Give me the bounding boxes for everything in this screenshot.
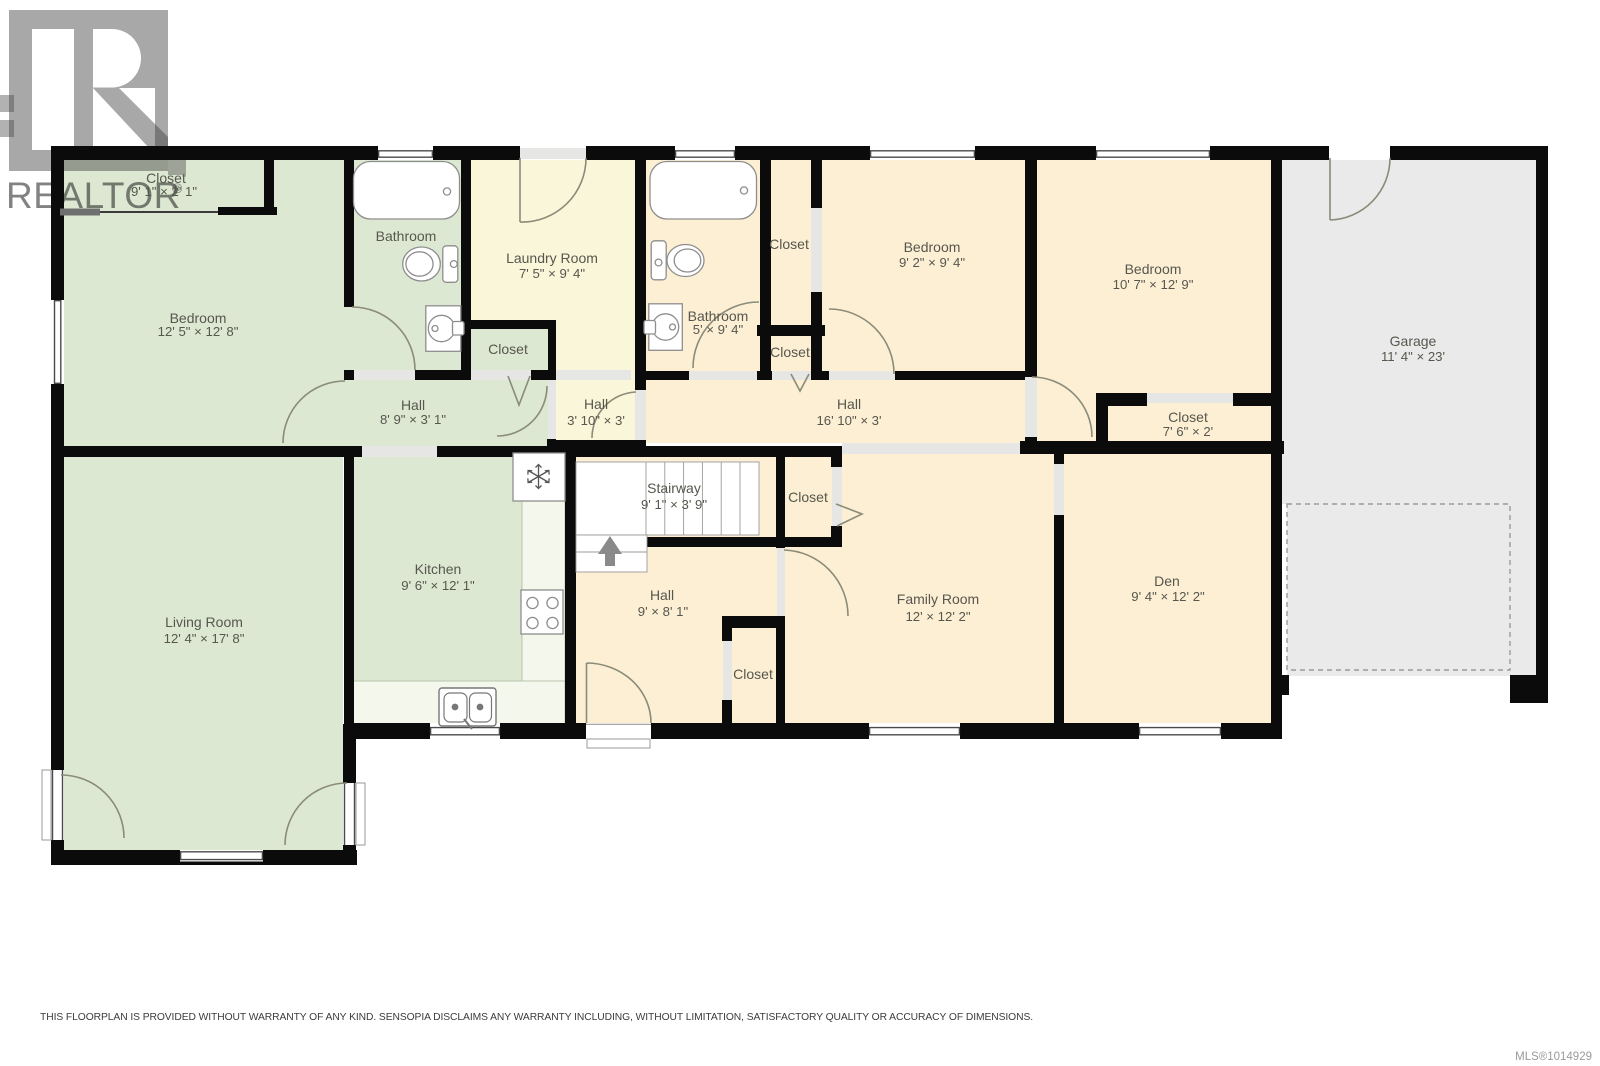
svg-text:3' 10" × 3': 3' 10" × 3' bbox=[567, 413, 625, 428]
svg-text:Closet: Closet bbox=[770, 344, 810, 360]
svg-text:9' 2" × 9' 4": 9' 2" × 9' 4" bbox=[899, 255, 965, 270]
svg-text:11' 4" × 23': 11' 4" × 23' bbox=[1381, 349, 1445, 364]
svg-text:8' 9" × 3' 1": 8' 9" × 3' 1" bbox=[380, 412, 446, 427]
svg-text:Stairway: Stairway bbox=[647, 480, 701, 496]
svg-text:12' 4" × 17' 8": 12' 4" × 17' 8" bbox=[164, 631, 245, 646]
svg-text:Hall: Hall bbox=[837, 396, 861, 412]
svg-text:9' 1" × 3' 9": 9' 1" × 3' 9" bbox=[641, 497, 707, 512]
svg-text:Closet: Closet bbox=[1168, 409, 1208, 425]
svg-text:Garage: Garage bbox=[1390, 333, 1437, 349]
svg-text:10' 7" × 12' 9": 10' 7" × 12' 9" bbox=[1113, 277, 1194, 292]
svg-text:Laundry Room: Laundry Room bbox=[506, 250, 598, 266]
svg-text:12' 5" × 12' 8": 12' 5" × 12' 8" bbox=[158, 324, 239, 339]
svg-text:Bathroom: Bathroom bbox=[376, 228, 437, 244]
svg-text:Family Room: Family Room bbox=[897, 591, 979, 607]
svg-text:MLS®1014929: MLS®1014929 bbox=[1515, 1051, 1592, 1063]
svg-text:Hall: Hall bbox=[650, 587, 674, 603]
svg-text:16' 10" × 3': 16' 10" × 3' bbox=[816, 413, 881, 428]
svg-text:7' 5" × 9' 4": 7' 5" × 9' 4" bbox=[519, 266, 585, 281]
svg-text:Closet: Closet bbox=[769, 236, 809, 252]
svg-text:7' 6" × 2': 7' 6" × 2' bbox=[1163, 424, 1213, 439]
svg-text:Bedroom: Bedroom bbox=[1125, 261, 1182, 277]
svg-text:Den: Den bbox=[1154, 573, 1180, 589]
svg-text:Bedroom: Bedroom bbox=[904, 239, 961, 255]
svg-text:Closet: Closet bbox=[733, 666, 773, 682]
svg-text:Closet: Closet bbox=[788, 489, 828, 505]
svg-text:12' × 12' 2": 12' × 12' 2" bbox=[905, 609, 970, 624]
svg-text:5' × 9' 4": 5' × 9' 4" bbox=[693, 322, 744, 337]
svg-text:Closet: Closet bbox=[488, 341, 528, 357]
svg-text:Living Room: Living Room bbox=[165, 614, 243, 630]
svg-text:9' 4" × 12' 2": 9' 4" × 12' 2" bbox=[1131, 589, 1205, 604]
svg-text:9' 1" × 2' 1": 9' 1" × 2' 1" bbox=[131, 184, 197, 199]
svg-text:THIS FLOORPLAN IS PROVIDED WIT: THIS FLOORPLAN IS PROVIDED WITHOUT WARRA… bbox=[40, 1012, 1033, 1023]
svg-text:Kitchen: Kitchen bbox=[415, 561, 462, 577]
svg-text:9' 6" × 12' 1": 9' 6" × 12' 1" bbox=[401, 578, 475, 593]
svg-text:Hall: Hall bbox=[584, 396, 608, 412]
svg-text:Hall: Hall bbox=[401, 397, 425, 413]
svg-text:9' × 8' 1": 9' × 8' 1" bbox=[638, 604, 689, 619]
